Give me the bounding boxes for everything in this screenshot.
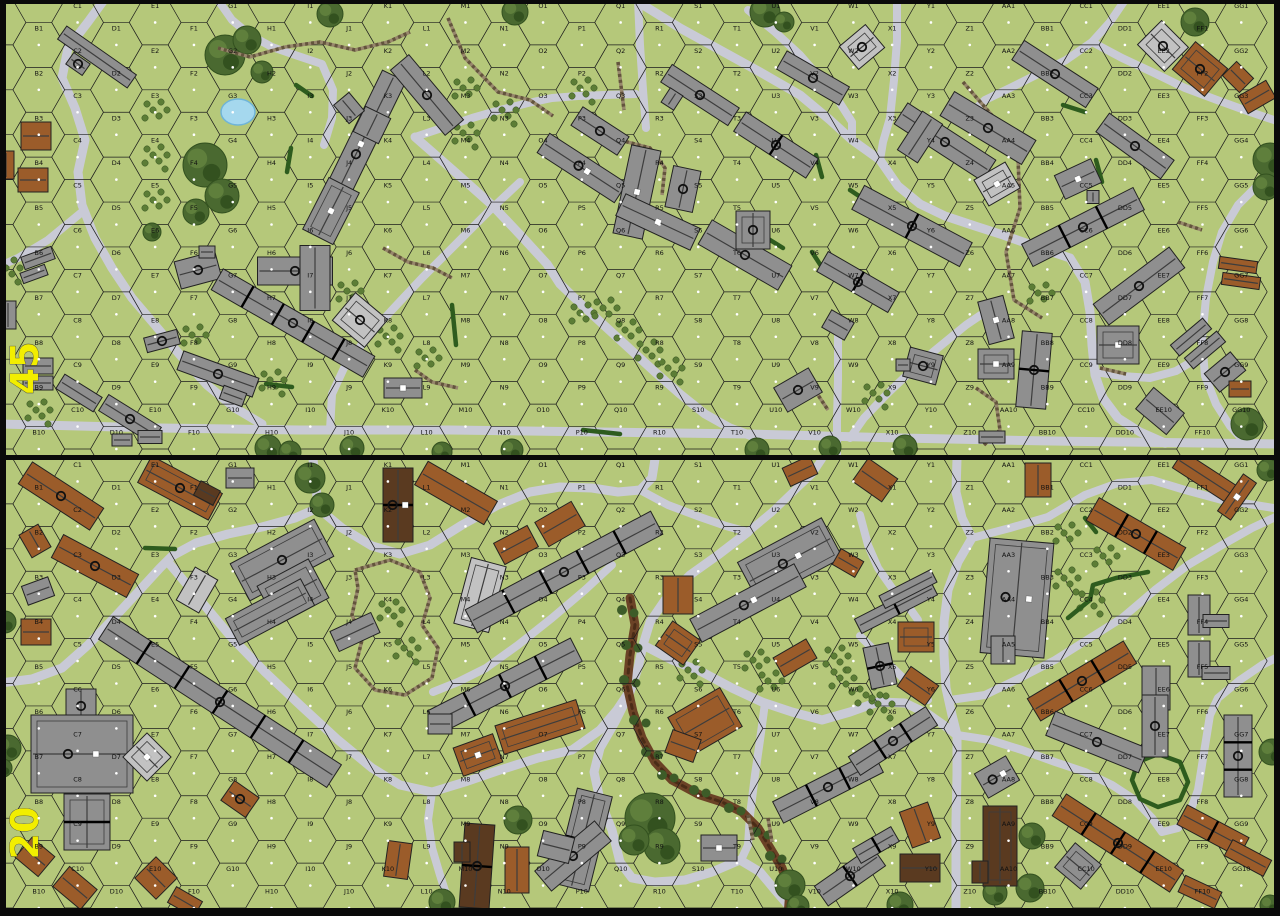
woods-highlight	[630, 799, 653, 822]
orchard-tree	[583, 316, 589, 322]
hex-center-dot	[309, 335, 312, 338]
hex-label: G8	[228, 775, 237, 783]
hex-center-dot	[968, 772, 971, 775]
orchard-tree	[468, 122, 474, 128]
hex-label: EE9	[1158, 820, 1170, 828]
hex-label: EE4	[1158, 596, 1170, 604]
stone-building[interactable]	[384, 378, 422, 398]
hex-center-dot	[542, 794, 545, 797]
pond[interactable]	[221, 99, 255, 125]
hex-label: M3	[461, 92, 471, 100]
hex-label: EE7	[1158, 271, 1170, 279]
hex-label: C8	[73, 775, 82, 783]
hex-center-dot	[736, 637, 739, 640]
orchard-tree	[428, 361, 434, 367]
hex-label: W6	[848, 686, 859, 694]
hex-center-dot	[231, 156, 234, 159]
hex-label: P1	[578, 24, 586, 32]
hex-label: M8	[461, 775, 471, 783]
stone-building[interactable]	[138, 431, 162, 444]
hex-label: F8	[190, 339, 198, 347]
hex-label: P1	[578, 483, 586, 491]
hex-label: AA7	[1002, 271, 1015, 279]
hex-label: Y3	[926, 92, 935, 100]
hex-center-dot	[697, 156, 700, 159]
hex-label: S8	[694, 316, 702, 324]
wooden-building[interactable]	[505, 847, 529, 893]
stone-building[interactable]	[199, 246, 215, 258]
orchard-tree	[468, 77, 474, 83]
hex-label: G3	[228, 551, 237, 559]
hex-label: S2	[694, 506, 702, 514]
hex-center-dot	[930, 246, 933, 249]
hex-center-dot	[387, 66, 390, 69]
hex-label: Y6	[926, 686, 935, 694]
hex-center-dot	[270, 268, 273, 271]
wooden-building[interactable]	[384, 841, 413, 880]
hex-label: B8	[34, 798, 43, 806]
stone-building[interactable]	[1224, 715, 1252, 797]
hex-center-dot	[425, 89, 428, 92]
hex-center-dot	[387, 794, 390, 797]
woods[interactable]	[310, 493, 334, 517]
hex-center-dot	[270, 548, 273, 551]
hex-center-dot	[1201, 682, 1204, 685]
hex-label: I6	[307, 227, 313, 235]
hex-center-dot	[736, 133, 739, 136]
woods-shadow	[1265, 186, 1275, 196]
hex-center-dot	[503, 223, 506, 226]
orchard-tree	[397, 621, 403, 627]
orchard-tree	[261, 371, 267, 377]
hex-label: CC6	[1080, 227, 1093, 235]
hex-center-dot	[775, 615, 778, 618]
hex-center-dot	[542, 480, 545, 483]
hex-label: T4	[732, 618, 741, 626]
orchard-tree	[156, 113, 162, 119]
hex-label: H4	[267, 159, 276, 167]
hex-label: DD5	[1118, 204, 1132, 212]
orchard-tree	[393, 599, 399, 605]
hex-label: G6	[228, 686, 237, 694]
hex-label: DD7	[1118, 294, 1132, 302]
hex-center-dot	[775, 380, 778, 383]
wooden-building[interactable]	[972, 861, 988, 883]
hex-label: BB3	[1041, 573, 1054, 581]
hex-center-dot	[775, 570, 778, 573]
hex-label: J5	[345, 204, 352, 212]
orchard-tree	[9, 271, 15, 277]
hex-center-dot	[231, 570, 234, 573]
hex-label: L4	[423, 618, 431, 626]
stone-building[interactable]	[1142, 695, 1168, 757]
stairwell-marker	[992, 316, 999, 323]
hex-center-dot	[37, 862, 40, 865]
woods[interactable]	[504, 806, 532, 834]
orchard-tree	[881, 707, 887, 713]
stone-building[interactable]	[64, 794, 110, 850]
hex-center-dot	[930, 705, 933, 708]
hex-label: V4	[810, 159, 819, 167]
hex-label: D9	[112, 384, 121, 392]
hex-center-dot	[37, 133, 40, 136]
hex-center-dot	[1007, 750, 1010, 753]
hex-center-dot	[1162, 570, 1165, 573]
hex-label: AA3	[1002, 92, 1015, 100]
hex-center-dot	[658, 223, 661, 226]
hex-label: BB10	[1039, 888, 1056, 896]
hex-center-dot	[37, 44, 40, 47]
hex-center-dot	[619, 291, 622, 294]
hex-center-dot	[775, 66, 778, 69]
hex-label: X4	[888, 618, 897, 626]
hex-label: Y6	[926, 227, 935, 235]
hex-center-dot	[619, 570, 622, 573]
stone-building[interactable]	[979, 431, 1005, 443]
hex-center-dot	[1085, 111, 1088, 114]
woods-shadow	[195, 211, 205, 221]
orchard-tree	[395, 347, 401, 353]
hex-center-dot	[581, 448, 584, 451]
hex-label: G4	[228, 596, 237, 604]
hex-label: Y7	[926, 271, 935, 279]
hex-label: N9	[500, 384, 509, 392]
orchard-tree	[45, 421, 51, 427]
hex-label: N8	[500, 339, 509, 347]
orchard-tree	[825, 647, 831, 653]
hex-label: F3	[190, 114, 198, 122]
stairwell-marker	[402, 502, 408, 508]
hex-center-dot	[425, 637, 428, 640]
hex-label: C4	[73, 137, 82, 145]
hex-label: L6	[423, 249, 431, 257]
woods-shadow	[829, 446, 838, 455]
orchard-tree	[491, 115, 497, 121]
hex-center-dot	[852, 335, 855, 338]
hex-center-dot	[1046, 223, 1049, 226]
hex-center-dot	[270, 403, 273, 406]
hex-center-dot	[37, 637, 40, 640]
orchard-tree	[875, 701, 881, 707]
hex-center-dot	[813, 448, 816, 451]
hex-label: J1	[345, 483, 352, 491]
hex-label: E4	[151, 137, 159, 145]
hex-center-dot	[542, 66, 545, 69]
hex-label: BB1	[1041, 483, 1054, 491]
hex-center-dot	[425, 313, 428, 316]
hex-label: H8	[267, 798, 276, 806]
orchard-tree	[1108, 545, 1114, 551]
hex-label: U6	[771, 227, 780, 235]
hex-center-dot	[1046, 637, 1049, 640]
hex-label: F5	[190, 204, 198, 212]
hex-center-dot	[425, 268, 428, 271]
hex-label: D6	[112, 249, 121, 257]
hex-center-dot	[968, 862, 971, 865]
hex-center-dot	[231, 21, 234, 24]
hex-label: T10	[730, 888, 743, 896]
hex-label: I9	[307, 820, 313, 828]
woods-highlight	[1022, 826, 1034, 838]
orchard-tree	[1073, 589, 1079, 595]
hex-label: U8	[771, 775, 780, 783]
hex-label: E10	[149, 865, 161, 873]
hex-label: B3	[34, 573, 43, 581]
hex-label: AA9	[1002, 820, 1015, 828]
hex-center-dot	[968, 682, 971, 685]
hex-label: I6	[307, 686, 313, 694]
hex-label: N8	[500, 798, 509, 806]
hex-label: U8	[771, 316, 780, 324]
hex-label: E7	[151, 271, 159, 279]
hex-label: EE4	[1158, 137, 1170, 145]
hex-map-canvas[interactable]: 45A1A2A3A4A5A6A7A8A9A10B1B2B3B4B5B6B7B8B…	[0, 0, 1280, 916]
woods[interactable]	[819, 436, 841, 458]
hex-label: D4	[112, 618, 121, 626]
hex-center-dot	[387, 705, 390, 708]
orchard-tree	[144, 146, 150, 152]
hex-label: N10	[498, 888, 511, 896]
hex-center-dot	[348, 358, 351, 361]
hex-label: X2	[888, 528, 897, 536]
hex-label: FF8	[1197, 798, 1209, 806]
hex-label: Z1	[965, 24, 974, 32]
hex-center-dot	[542, 570, 545, 573]
hex-label: Q7	[616, 730, 625, 738]
hex-label: E9	[151, 361, 159, 369]
hex-center-dot	[348, 44, 351, 47]
hex-center-dot	[1085, 156, 1088, 159]
hex-center-dot	[1046, 313, 1049, 316]
hex-label: Q5	[616, 182, 625, 190]
hex-center-dot	[1201, 772, 1204, 775]
hex-center-dot	[1007, 884, 1010, 887]
hex-center-dot	[775, 525, 778, 528]
hex-label: B2	[34, 69, 43, 77]
hex-label: CC9	[1080, 820, 1093, 828]
stone-building[interactable]	[428, 714, 452, 734]
hex-center-dot	[1162, 839, 1165, 842]
hex-label: E3	[151, 92, 159, 100]
hex-center-dot	[775, 884, 778, 887]
gully-scrub	[670, 774, 679, 783]
hex-label: BB7	[1041, 753, 1054, 761]
hex-center-dot	[658, 682, 661, 685]
hex-center-dot	[37, 223, 40, 226]
hex-center-dot	[968, 503, 971, 506]
stone-building[interactable]	[701, 835, 737, 861]
hex-center-dot	[1007, 111, 1010, 114]
hex-center-dot	[1046, 448, 1049, 451]
hex-center-dot	[813, 178, 816, 181]
hex-center-dot	[76, 21, 79, 24]
hex-label: T2	[732, 528, 741, 536]
stone-building[interactable]	[226, 468, 254, 488]
hex-label: S4	[694, 596, 702, 604]
stone-building[interactable]	[300, 246, 330, 311]
woods-shadow	[246, 39, 257, 50]
hex-center-dot	[1240, 705, 1243, 708]
hex-label: T9	[732, 843, 741, 851]
orchard-tree	[413, 659, 419, 665]
orchard-tree	[855, 700, 861, 706]
hex-label: B9	[34, 384, 43, 392]
orchard-tree	[569, 93, 575, 99]
hex-center-dot	[425, 817, 428, 820]
hex-center-dot	[76, 750, 79, 753]
hex-label: R10	[653, 429, 666, 437]
hex-label: W10	[846, 865, 861, 873]
hex-center-dot	[1162, 884, 1165, 887]
hex-center-dot	[697, 660, 700, 663]
wooden-building[interactable]	[1025, 463, 1051, 497]
hex-label: T6	[732, 249, 741, 257]
hex-label: Y3	[926, 551, 935, 559]
hex-label: Z6	[965, 249, 974, 257]
hex-center-dot	[464, 335, 467, 338]
woods[interactable]	[317, 1, 343, 27]
hex-center-dot	[387, 425, 390, 428]
road[interactable]	[837, 330, 838, 455]
orchard-tree	[1055, 524, 1061, 530]
hex-center-dot	[1124, 89, 1127, 92]
hex-label: V10	[808, 888, 821, 896]
hex-label: Z9	[965, 384, 974, 392]
hex-label: F7	[190, 753, 198, 761]
woods-highlight	[890, 895, 902, 907]
hex-label: I5	[307, 182, 313, 190]
woods-highlight	[895, 438, 906, 449]
hex-center-dot	[1240, 335, 1243, 338]
wooden-building[interactable]	[663, 576, 693, 614]
hex-label: S10	[692, 865, 704, 873]
hex-label: B5	[34, 663, 43, 671]
hex-label: C7	[73, 271, 82, 279]
hex-center-dot	[1085, 66, 1088, 69]
hex-center-dot	[542, 201, 545, 204]
hex-center-dot	[154, 246, 157, 249]
hex-center-dot	[697, 480, 700, 483]
board-separator	[0, 455, 1280, 460]
hex-label: S1	[694, 461, 702, 469]
hex-center-dot	[852, 291, 855, 294]
hex-center-dot	[891, 223, 894, 226]
hex-center-dot	[76, 111, 79, 114]
hex-label: J10	[343, 429, 354, 437]
stone-building[interactable]	[1087, 191, 1099, 204]
hex-center-dot	[968, 313, 971, 316]
board-20[interactable]: 20A1A2A3A4A5A6A7A8A9A10B1B2B3B4B5B6B7B8B…	[0, 451, 1280, 916]
hex-center-dot	[852, 705, 855, 708]
hex-label: F2	[190, 69, 198, 77]
hex-label: B1	[34, 483, 43, 491]
hex-center-dot	[503, 403, 506, 406]
hex-label: DD6	[1118, 708, 1132, 716]
hex-center-dot	[775, 705, 778, 708]
hex-center-dot	[1201, 448, 1204, 451]
hex-label: C1	[73, 461, 82, 469]
hex-center-dot	[348, 503, 351, 506]
hex-label: Q4	[616, 596, 625, 604]
woods[interactable]	[619, 825, 649, 855]
hex-label: V8	[810, 798, 819, 806]
wooden-building[interactable]	[21, 122, 51, 150]
board-45[interactable]: 45A1A2A3A4A5A6A7A8A9A10B1B2B3B4B5B6B7B8B…	[0, 0, 1280, 494]
hex-center-dot	[503, 503, 506, 506]
hex-center-dot	[154, 660, 157, 663]
hex-center-dot	[387, 201, 390, 204]
hex-center-dot	[193, 592, 196, 595]
hex-center-dot	[697, 380, 700, 383]
hex-label: I7	[307, 271, 313, 279]
orchard-tree	[41, 399, 47, 405]
hex-label: J8	[345, 798, 352, 806]
wooden-building[interactable]	[18, 168, 48, 192]
stone-building[interactable]	[896, 359, 910, 371]
hex-center-dot	[76, 794, 79, 797]
hex-label: Z9	[965, 843, 974, 851]
hex-center-dot	[154, 380, 157, 383]
hex-center-dot	[115, 313, 118, 316]
hex-center-dot	[1162, 525, 1165, 528]
wooden-building[interactable]	[1229, 381, 1251, 397]
hex-center-dot	[813, 44, 816, 47]
hex-center-dot	[813, 89, 816, 92]
orchard-tree	[39, 413, 45, 419]
hex-center-dot	[270, 133, 273, 136]
hex-label: Z7	[965, 294, 974, 302]
hex-center-dot	[852, 750, 855, 753]
gully-scrub	[629, 715, 639, 725]
wooden-building[interactable]	[454, 842, 470, 862]
hex-center-dot	[387, 21, 390, 24]
hex-center-dot	[193, 682, 196, 685]
hex-center-dot	[1240, 615, 1243, 618]
hex-label: D2	[112, 528, 121, 536]
hex-center-dot	[193, 448, 196, 451]
stone-building[interactable]	[736, 211, 770, 249]
hex-label: GG10	[1232, 865, 1250, 873]
hex-center-dot	[813, 358, 816, 361]
hex-center-dot	[309, 794, 312, 797]
hex-label: G3	[228, 92, 237, 100]
hex-label: S10	[692, 406, 704, 414]
hex-label: AA8	[1002, 316, 1015, 324]
hex-label: F1	[190, 24, 198, 32]
hex-center-dot	[581, 178, 584, 181]
hex-label: N1	[500, 24, 509, 32]
hex-label: BB4	[1041, 618, 1054, 626]
hex-center-dot	[1201, 178, 1204, 181]
hex-center-dot	[736, 727, 739, 730]
hex-center-dot	[464, 291, 467, 294]
gully-scrub	[778, 855, 787, 864]
hex-center-dot	[1162, 380, 1165, 383]
orchard-tree	[608, 297, 614, 303]
hex-label: K8	[384, 316, 392, 324]
hex-center-dot	[1007, 839, 1010, 842]
hex-label: E2	[151, 506, 159, 514]
hex-label: W3	[848, 92, 859, 100]
hex-label: Z8	[965, 798, 974, 806]
orchard-tree	[409, 637, 415, 643]
hex-label: E5	[151, 182, 159, 190]
hex-label: CC10	[1077, 865, 1094, 873]
orchard-tree	[454, 79, 460, 85]
hex-label: T5	[732, 663, 741, 671]
hex-center-dot	[154, 156, 157, 159]
hex-center-dot	[658, 548, 661, 551]
